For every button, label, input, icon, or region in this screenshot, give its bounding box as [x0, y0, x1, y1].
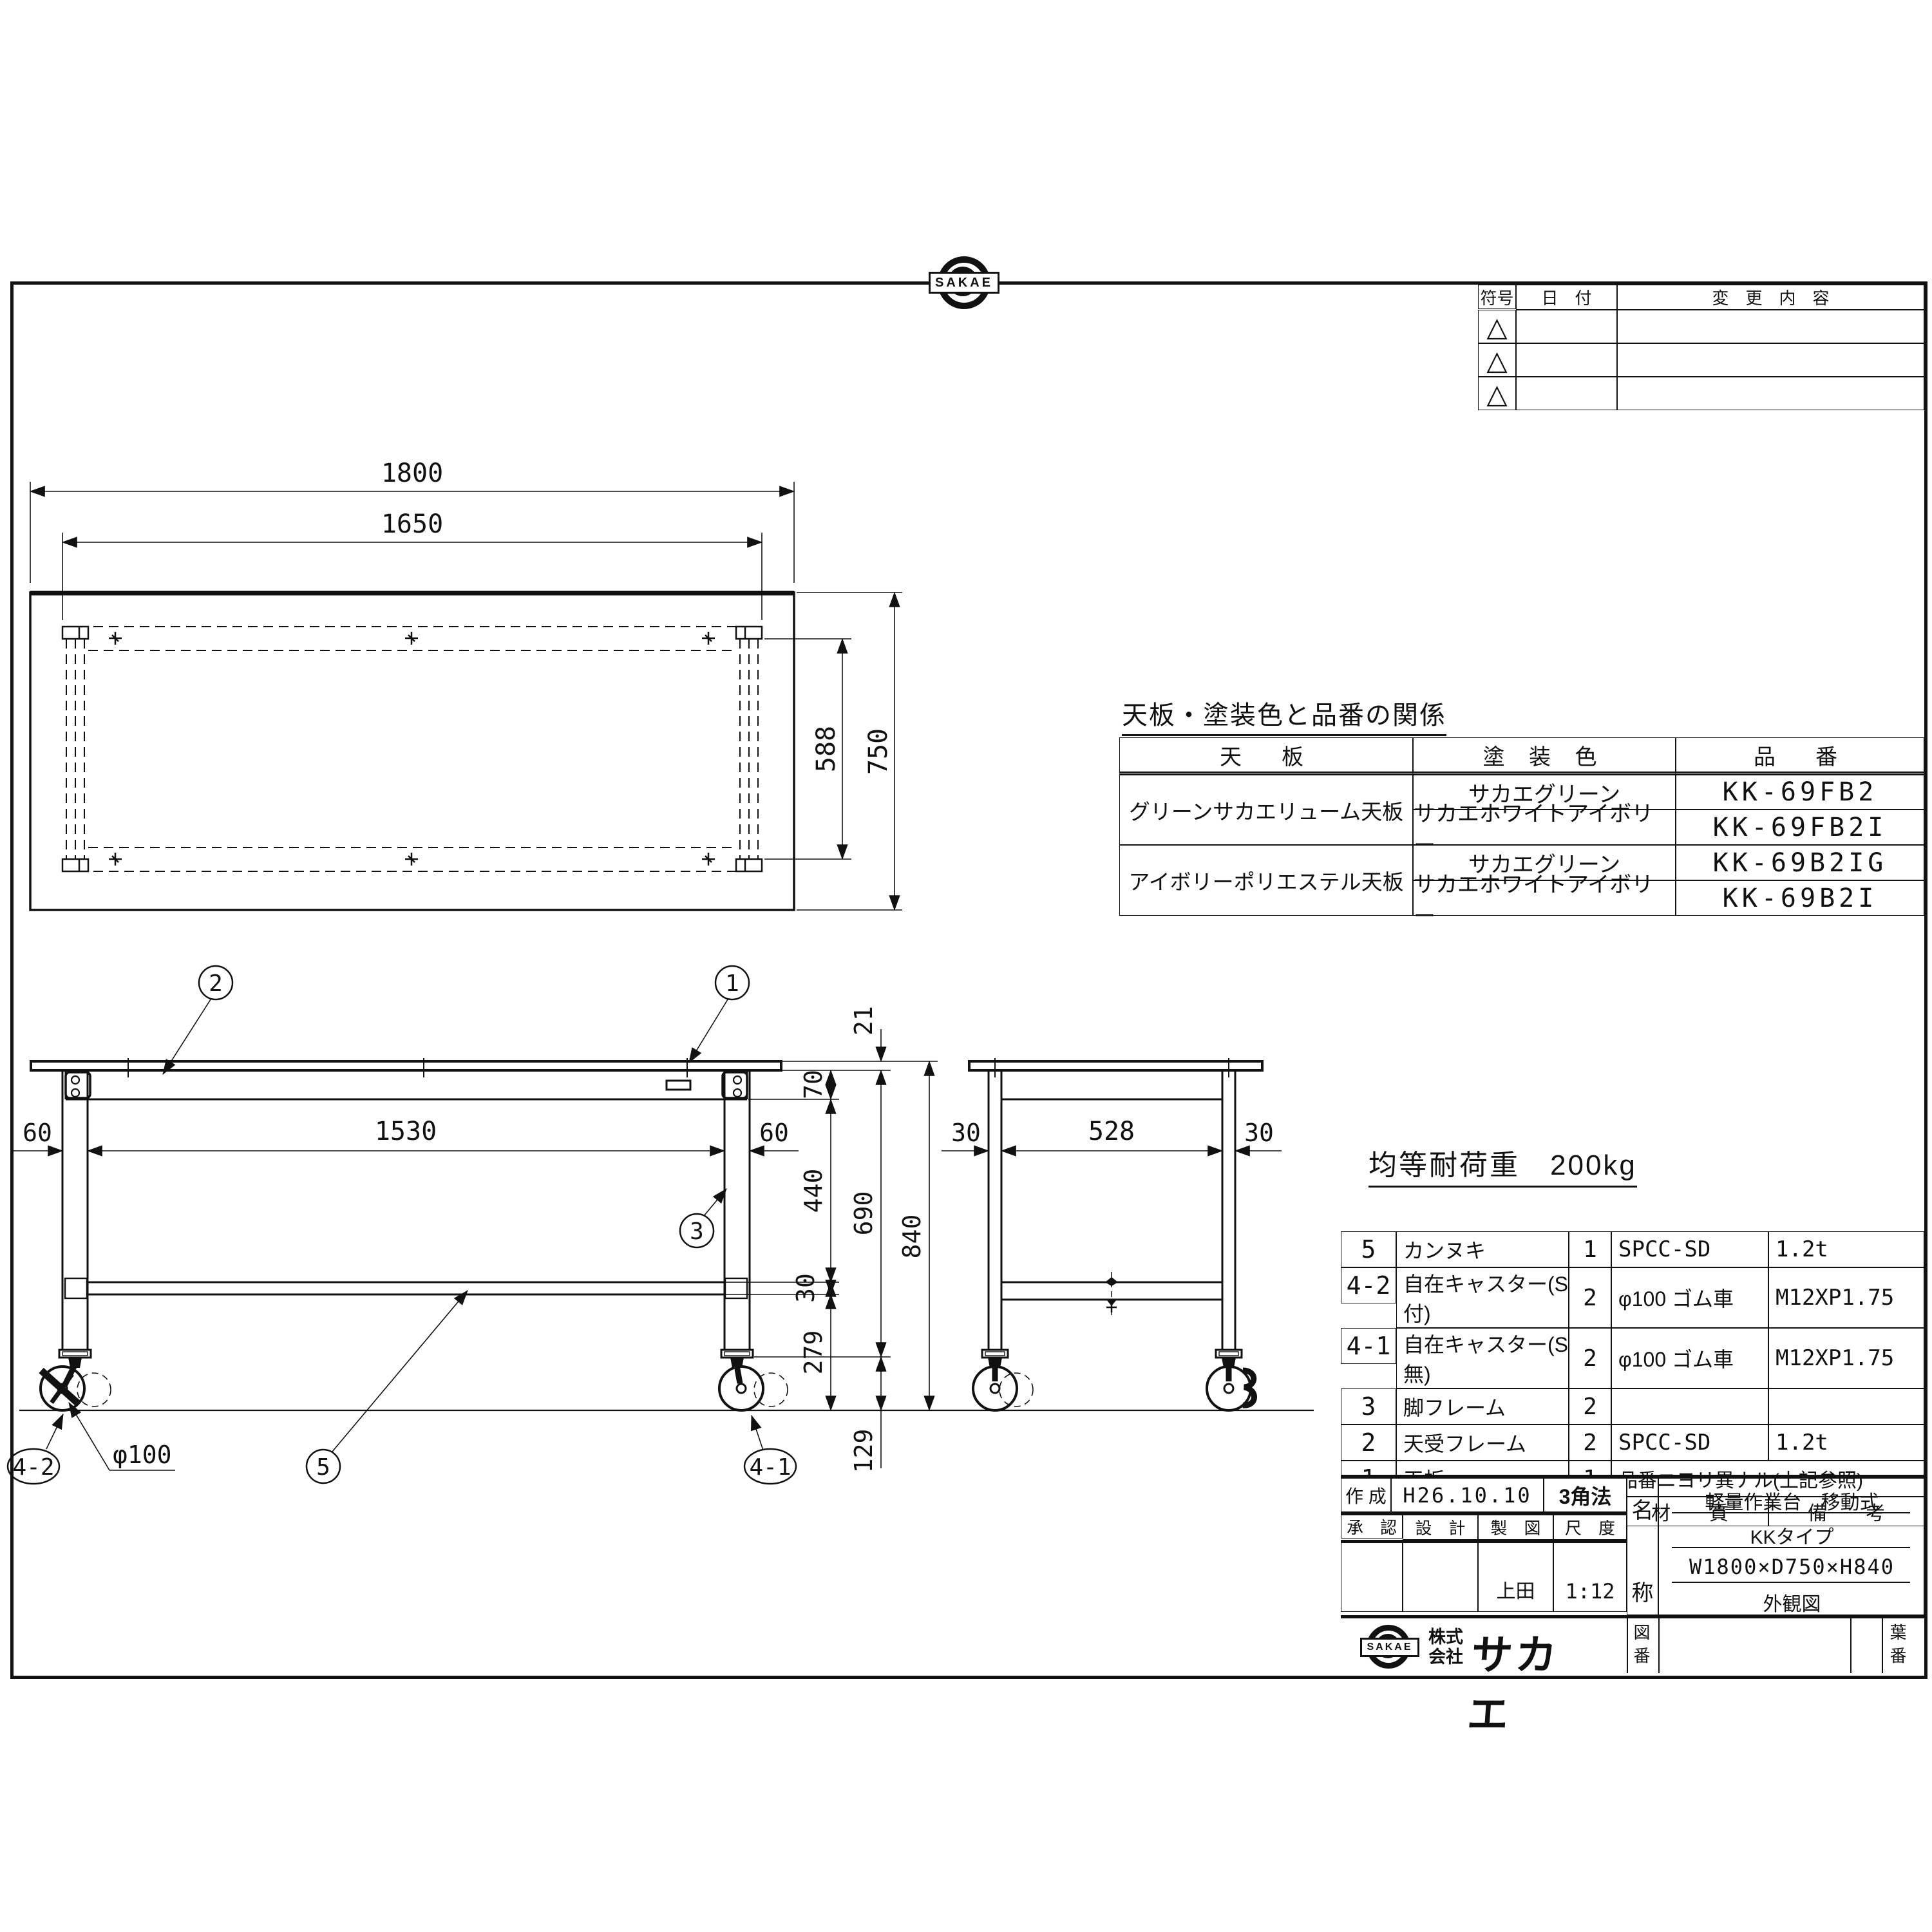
part-no: 5 [1341, 1231, 1396, 1267]
part-no: 4-1 [1341, 1328, 1396, 1364]
part-note: 1.2t [1768, 1231, 1924, 1267]
name-column: 名 称 [1627, 1478, 1658, 1615]
part-qty: 1 [1569, 1231, 1611, 1267]
balloon-4-2-label: 4-2 [12, 1454, 54, 1481]
revision-marker: △ [1478, 310, 1516, 343]
part-material [1611, 1388, 1768, 1425]
part-material: φ100 ゴム車 [1611, 1267, 1768, 1328]
balloon-2-label: 2 [209, 971, 223, 997]
part-qty: 2 [1569, 1328, 1611, 1388]
part-note: 1.2t [1768, 1425, 1924, 1461]
side-dim-30R: 30 [1244, 1119, 1274, 1147]
balloon-4-1-label: 4-1 [749, 1454, 791, 1481]
load-capacity-note: 均等耐荷重 200kg [1368, 1142, 1637, 1188]
color-row-code: KK-69B2I [1676, 880, 1924, 916]
projection-method: 3角法 [1544, 1478, 1627, 1512]
part-no: 2 [1341, 1425, 1396, 1461]
balloon-3-label: 3 [690, 1218, 704, 1245]
part-no: 4-2 [1341, 1267, 1396, 1303]
color-table-title: 天板・塗装色と品番の関係 [1122, 694, 1446, 736]
scale-label: 尺 度 [1553, 1515, 1627, 1540]
front-dim-70: 70 [799, 1070, 828, 1099]
part-material: φ100 ゴム車 [1611, 1328, 1768, 1388]
revision-col-date: 日 付 [1516, 285, 1617, 310]
revision-change-cell [1617, 343, 1924, 377]
company-prefix: 株式 会社 [1428, 1627, 1463, 1667]
front-dim-129: 129 [849, 1429, 878, 1473]
side-dim-30L: 30 [951, 1119, 981, 1147]
revision-table: 符号 日 付 変 更 内 容 △ △ △ [1478, 285, 1924, 410]
company-prefix-1: 株式 [1428, 1627, 1463, 1647]
vline [1850, 1618, 1851, 1673]
part-qty: 2 [1569, 1388, 1611, 1425]
front-dim-60L: 60 [23, 1119, 52, 1147]
color-row-color: サカエホワイトアイボリー [1413, 880, 1676, 916]
color-row-code: KK-69B2IG [1676, 845, 1924, 880]
revision-col-symbol: 符号 [1478, 285, 1516, 309]
revision-marker: △ [1478, 377, 1516, 410]
color-row-top: グリーンサカエリューム天板 [1119, 775, 1413, 845]
design-value [1403, 1542, 1478, 1612]
draft-value: 上田 [1478, 1542, 1553, 1612]
sakae-logo-top: SAKAE [934, 256, 992, 310]
product-series: KKタイプ [1659, 1521, 1925, 1549]
part-material: SPCC-SD [1611, 1231, 1768, 1267]
caster-dia-label: φ100 [113, 1441, 172, 1469]
plan-dim-1650: 1650 [381, 509, 443, 539]
part-material: SPCC-SD [1611, 1425, 1768, 1461]
name-char-2: 称 [1627, 1575, 1658, 1607]
front-dim-440: 440 [799, 1169, 828, 1213]
logo-banner-text: SAKAE [935, 276, 993, 290]
created-date: H26.10.10 [1391, 1478, 1544, 1512]
part-name: カンヌキ [1396, 1231, 1569, 1267]
company-prefix-2: 会社 [1428, 1647, 1463, 1667]
front-dim-279: 279 [799, 1331, 828, 1375]
side-view: 30 528 30 [942, 1058, 1282, 1410]
product-size: W1800×D750×H840 [1659, 1555, 1925, 1579]
color-row-code: KK-69FB2I [1676, 810, 1924, 845]
revision-change-cell [1617, 377, 1924, 410]
company-row: 図番 葉番 SAKAE 株式 会社 サカエ [1341, 1618, 1924, 1673]
plan-view: 1800 1650 588 750 [30, 459, 902, 910]
drafter-name: 上田 [1497, 1575, 1535, 1604]
part-no: 3 [1341, 1388, 1396, 1425]
draft-label: 製 図 [1478, 1515, 1553, 1540]
part-note [1768, 1388, 1924, 1425]
vline [1882, 1618, 1883, 1673]
color-col-top: 天 板 [1119, 737, 1413, 775]
color-row-code: KK-69FB2 [1676, 775, 1924, 810]
front-dim-30: 30 [791, 1273, 820, 1303]
logo-banner: SAKAE [1360, 1638, 1419, 1657]
part-name: 自在キャスター(S無) [1396, 1328, 1569, 1388]
created-label: 作 成 [1341, 1478, 1391, 1512]
triangle-icon: △ [1486, 311, 1507, 343]
plan-dim-1800: 1800 [381, 459, 443, 488]
name-char-1: 名 [1627, 1493, 1658, 1524]
color-row-color: サカエホワイトアイボリー [1413, 810, 1676, 845]
triangle-icon: △ [1486, 378, 1507, 410]
sheet-no-label: 葉番 [1886, 1624, 1909, 1670]
side-dim-528: 528 [1088, 1117, 1135, 1146]
name-divider [1672, 1512, 1910, 1513]
balloon-5-label: 5 [316, 1454, 330, 1481]
revision-change-cell [1617, 310, 1924, 343]
scale-ratio: 1:12 [1565, 1579, 1615, 1604]
vline [1627, 1618, 1628, 1673]
approved-label: 承 認 [1341, 1515, 1403, 1539]
triangle-icon: △ [1486, 345, 1507, 376]
color-table: 天 板 塗 装 色 品 番 グリーンサカエリューム天板 サカエグリーン KK-6… [1119, 737, 1924, 916]
color-row-top: アイボリーポリエステル天板 [1119, 845, 1413, 916]
front-dim-21: 21 [849, 1006, 878, 1036]
logo-banner-text: SAKAE [1367, 1642, 1412, 1653]
product-view: 外観図 [1659, 1588, 1925, 1616]
plan-dim-588: 588 [811, 726, 841, 772]
part-qty: 2 [1569, 1267, 1611, 1328]
part-qty: 2 [1569, 1425, 1611, 1461]
name-divider [1672, 1547, 1910, 1548]
drawing-no-label: 図番 [1629, 1624, 1653, 1670]
product-name-area: 軽量作業台 移動式 KKタイプ W1800×D750×H840 外観図 [1658, 1478, 1924, 1615]
product-type: 軽量作業台 移動式 [1659, 1486, 1925, 1515]
balloon-1-label: 1 [725, 971, 739, 997]
vline [1658, 1618, 1660, 1673]
sakae-logo-bottom: SAKAE 株式 会社 サカエ [1367, 1622, 1598, 1670]
logo-banner: SAKAE [929, 272, 999, 294]
revision-marker: △ [1478, 343, 1516, 377]
revision-col-change: 変 更 内 容 [1617, 285, 1924, 310]
part-note: M12XP1.75 [1768, 1267, 1924, 1328]
approved-value [1341, 1542, 1403, 1612]
revision-date-cell [1516, 310, 1617, 343]
revision-date-cell [1516, 377, 1617, 410]
part-name: 天受フレーム [1396, 1425, 1569, 1461]
plan-dim-750: 750 [864, 728, 893, 775]
front-dim-690: 690 [849, 1191, 878, 1236]
part-note: M12XP1.75 [1768, 1328, 1924, 1388]
front-dim-840: 840 [898, 1215, 926, 1259]
revision-date-cell [1516, 343, 1617, 377]
front-dim-1530: 1530 [375, 1117, 437, 1146]
company-name: サカエ [1466, 1622, 1603, 1741]
front-dim-60R: 60 [759, 1119, 789, 1147]
color-col-color: 塗 装 色 [1413, 737, 1676, 775]
drawing-sheet: { "drawing": { "revision_table": {"col_s… [0, 0, 1932, 1932]
part-name: 自在キャスター(S付) [1396, 1267, 1569, 1328]
name-divider [1672, 1582, 1910, 1583]
design-label: 設 計 [1403, 1515, 1478, 1540]
scale-value: 1:12 [1553, 1542, 1627, 1612]
front-view: 60 1530 60 21 70 440 30 279 129 690 840 [8, 966, 1314, 1484]
color-col-code: 品 番 [1676, 737, 1924, 775]
part-name: 脚フレーム [1396, 1388, 1569, 1425]
